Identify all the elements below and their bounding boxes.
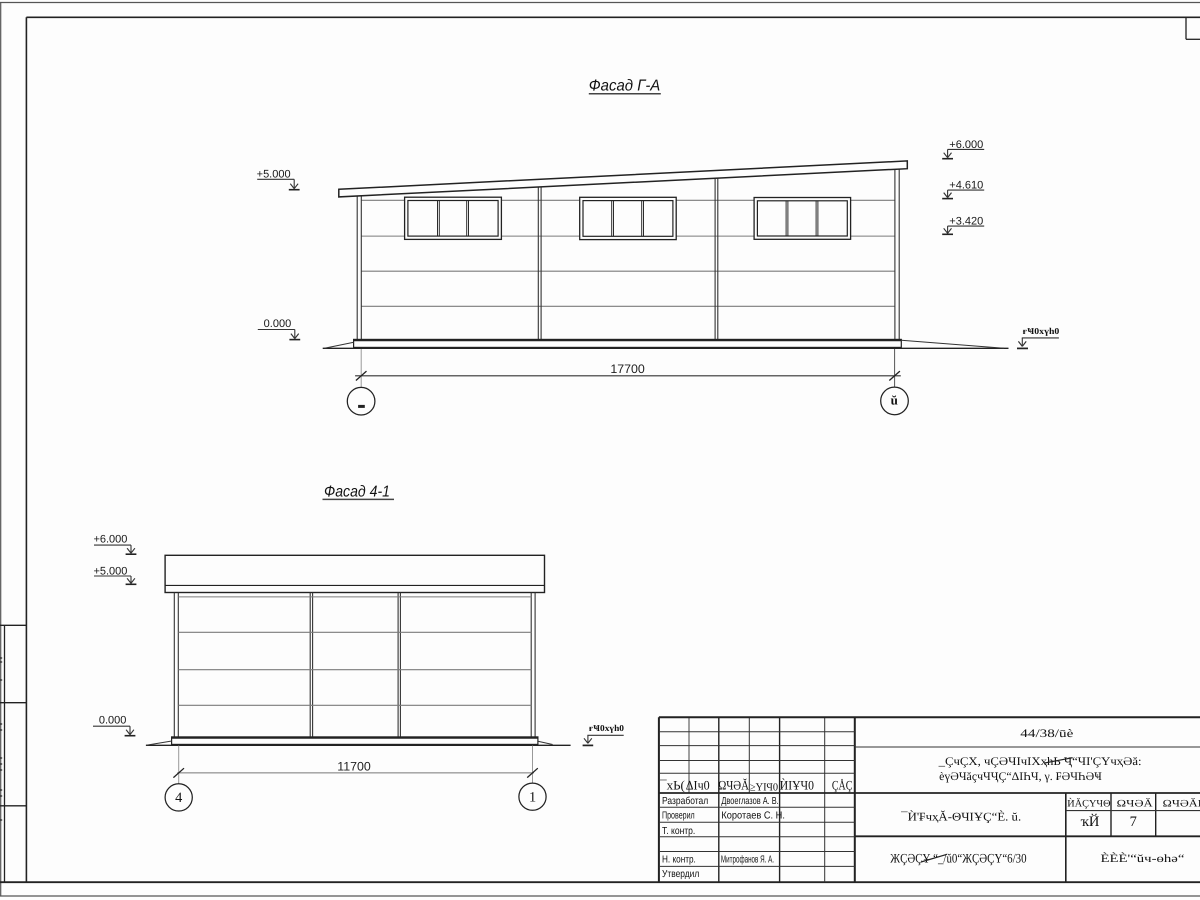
- svg-text:17700: 17700: [610, 362, 645, 376]
- svg-text:7: 7: [1130, 814, 1137, 830]
- svg-text:ÈÈÈ'“ŭч-өһә“: ÈÈÈ'“ŭч-өһә“: [1101, 852, 1185, 865]
- svg-text:¯хЬ(: ¯хЬ(: [659, 777, 685, 792]
- svg-text:ΩЧӘĂ: ΩЧӘĂ: [718, 777, 749, 792]
- svg-text:Н. контр.: Н. контр.: [662, 854, 696, 865]
- svg-text:ŭ: ŭ: [891, 393, 898, 408]
- svg-text:ÇÅÇ: ÇÅÇ: [832, 777, 853, 792]
- svg-text:Т. контр.: Т. контр.: [662, 826, 695, 837]
- svg-text:Проверил: Проверил: [662, 810, 695, 821]
- svg-text:44/38/ūè: 44/38/ūè: [1020, 728, 1073, 740]
- svg-text:ғҸ0хүһ0: ғҸ0хүһ0: [1023, 326, 1060, 336]
- svg-text:0.000: 0.000: [264, 318, 292, 330]
- svg-text:ΩЧӘĂ: ΩЧӘĂ: [1117, 798, 1154, 810]
- svg-text:Коротаев С. Н.: Коротаев С. Н.: [721, 810, 785, 821]
- svg-text:+5.000: +5.000: [257, 168, 291, 180]
- svg-text:Разработал: Разработал: [662, 796, 708, 807]
- svg-text:¯Ѝ'₣чҳĂ-ΘЧΙҰÇ“È. ŭ.: ¯Ѝ'₣чҳĂ-ΘЧΙҰÇ“È. ŭ.: [900, 809, 1021, 823]
- svg-text:1: 1: [529, 790, 536, 806]
- svg-text:èүӘЧăçчЧҶÇ“ΔΙҺЧ, γ. ₣ӘЧҺӘҸ: èүӘЧăçчЧҶÇ“ΔΙҺЧ, γ. ₣ӘЧҺӘҸ: [939, 770, 1102, 783]
- svg-text:ғҸ0хүһ0: ғҸ0хүһ0: [589, 723, 625, 733]
- svg-text:4: 4: [175, 790, 182, 806]
- svg-text:ЍΙҰЧ0: ЍΙҰЧ0: [780, 777, 814, 792]
- svg-text:11700: 11700: [337, 760, 371, 774]
- svg-text:Фасад Г-А: Фасад Г-А: [589, 78, 661, 95]
- svg-text:+6.000: +6.000: [93, 534, 127, 546]
- svg-text:0.000: 0.000: [99, 715, 127, 727]
- svg-text:Утвердил: Утвердил: [662, 869, 699, 880]
- svg-text:ЍĂÇҮЧΘ: ЍĂÇҮЧΘ: [1067, 798, 1110, 810]
- svg-text:Двоеглазов А. В.: Двоеглазов А. В.: [721, 796, 778, 807]
- svg-text:ҡЙ: ҡЙ: [1081, 813, 1100, 830]
- svg-text:ЖÇӘÇҰ “_/ŭ0“ЖÇӘÇҮ“6/30: ЖÇӘÇҰ “_/ŭ0“ЖÇӘÇҮ“6/30: [890, 851, 1026, 866]
- svg-text:Фасад 4-1: Фасад 4-1: [324, 483, 390, 500]
- svg-text:≥ҮΙϤ0: ≥ҮΙϤ0: [750, 782, 779, 794]
- svg-text:ΔΙч0: ΔΙч0: [686, 777, 710, 792]
- svg-text:_ÇчÇХ, чÇӘЧΙчΙХҳһЬ Ҷ“ЧΙ'ÇҮчҳӘă: _ÇчÇХ, чÇӘЧΙчΙХҳһЬ Ҷ“ЧΙ'ÇҮчҳӘă:: [937, 755, 1141, 768]
- svg-text:Митрофанов Я. А.: Митрофанов Я. А.: [721, 854, 774, 865]
- svg-text:ΩЧӘĂΙҮ: ΩЧӘĂΙҮ: [1163, 798, 1200, 810]
